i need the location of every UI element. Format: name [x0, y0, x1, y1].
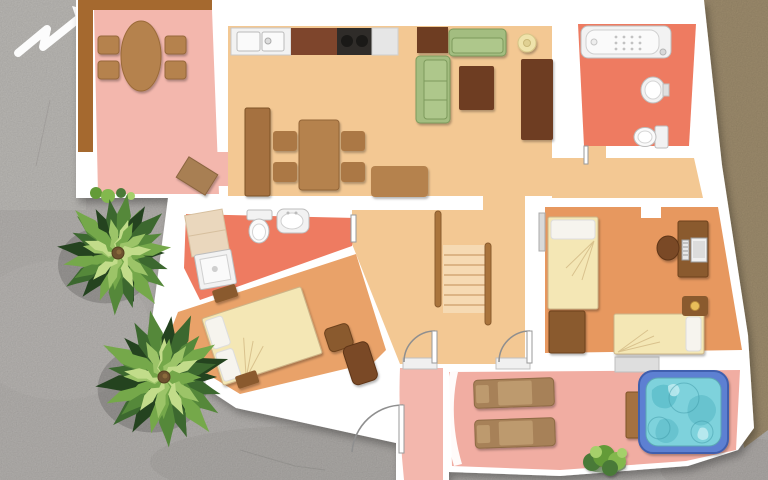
- stair-rail: [435, 211, 441, 307]
- bush: [101, 189, 115, 203]
- nightstand-knob: [691, 302, 700, 311]
- burner-icon: [356, 35, 368, 47]
- toilet-tank: [655, 126, 668, 148]
- burner-icon: [341, 35, 353, 47]
- sofa-seat: [452, 38, 503, 53]
- terrace-chair: [98, 36, 119, 54]
- dining-table: [299, 120, 339, 190]
- dining-chair: [341, 162, 365, 182]
- door-leaf: [432, 331, 437, 363]
- terrace-chair: [165, 61, 186, 79]
- bench-chest: [371, 166, 428, 197]
- counter-top: [291, 28, 337, 55]
- coffee-table: [459, 66, 494, 110]
- dining-chair: [273, 131, 297, 151]
- counter-white-unit: [372, 28, 398, 55]
- pillow: [686, 317, 701, 351]
- walkway-floor: [400, 368, 444, 480]
- terrace-chair: [165, 36, 186, 54]
- palm-trunk-center: [117, 250, 122, 255]
- lounger-cushion: [499, 420, 534, 445]
- sideboard-tall: [521, 59, 553, 140]
- faucet-icon: [265, 38, 271, 44]
- wall-stub-bedroom-r: [641, 198, 661, 218]
- bathtub-tap: [660, 49, 666, 55]
- lounger-cushion: [498, 380, 533, 405]
- bush: [127, 192, 135, 200]
- terrace-step: [615, 357, 659, 372]
- door-leaf: [584, 146, 588, 164]
- stair-rail: [485, 243, 491, 325]
- deck-edge-top: [78, 0, 212, 10]
- dining-chair: [341, 131, 365, 151]
- deck-edge-left: [78, 0, 93, 152]
- door-leaf: [351, 215, 356, 242]
- toilet-bowl-inner: [638, 131, 652, 143]
- jacuzzi: [639, 371, 728, 453]
- bush: [116, 188, 126, 198]
- floor-plan-stage: [0, 0, 768, 480]
- sink-bowl: [281, 213, 303, 229]
- sink-basin: [237, 32, 260, 51]
- terrace-chair: [98, 61, 119, 79]
- bush: [90, 187, 102, 199]
- kitchen-counter: [231, 28, 398, 55]
- sink-bowl: [645, 81, 661, 99]
- toilet-tank: [247, 210, 272, 220]
- bush: [602, 460, 618, 476]
- floor-plan-svg: [0, 0, 768, 480]
- wardrobe: [549, 311, 585, 353]
- door-leaf: [527, 331, 532, 363]
- sideboard: [245, 108, 270, 196]
- sink-tap: [663, 84, 669, 96]
- bush: [590, 446, 602, 458]
- office-chair: [657, 236, 679, 260]
- dining-chair: [273, 162, 297, 182]
- door-sill: [496, 358, 530, 369]
- monitor-screen: [693, 241, 705, 258]
- toilet-bowl-inner: [253, 224, 266, 240]
- wall-dining-hall: [180, 196, 483, 210]
- sofa-seat: [424, 60, 447, 119]
- sink-tap: [295, 212, 298, 215]
- bush: [617, 448, 627, 458]
- lounger-headrest: [477, 425, 491, 443]
- lounger-headrest: [476, 385, 490, 403]
- sink-tap: [287, 212, 290, 215]
- palm-trunk-center: [163, 374, 168, 379]
- pillow: [551, 220, 595, 239]
- door-leaf: [399, 405, 404, 453]
- floor-lamp-center: [524, 40, 531, 47]
- dining-table-oval: [121, 21, 161, 91]
- tv-cabinet: [417, 27, 448, 53]
- window-bedroom-r: [539, 213, 545, 251]
- bathtub-drain: [591, 39, 597, 45]
